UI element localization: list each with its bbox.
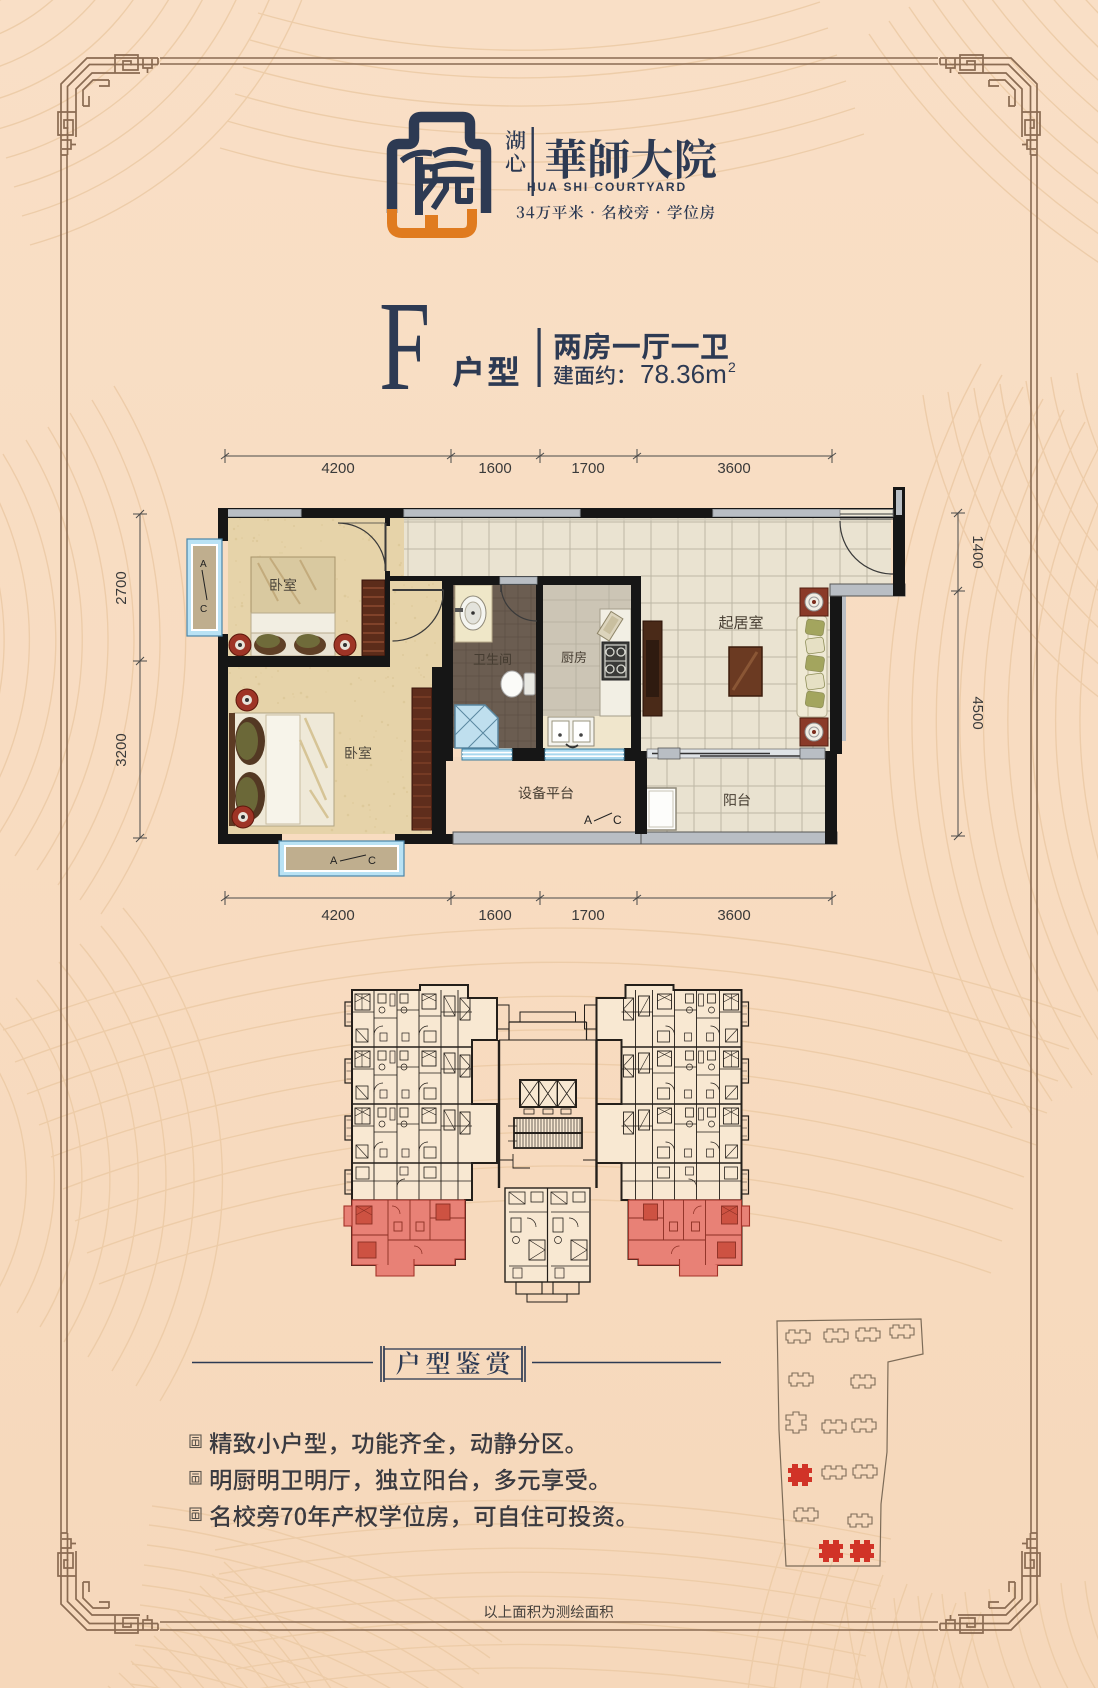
svg-text:2700: 2700 [113, 571, 130, 604]
svg-text:3600: 3600 [717, 907, 750, 924]
svg-text:F: F [379, 277, 430, 418]
svg-text:C: C [368, 855, 376, 867]
svg-text:3200: 3200 [113, 733, 130, 766]
svg-text:A: A [330, 855, 338, 867]
svg-text:2: 2 [728, 359, 736, 375]
svg-text:A: A [200, 559, 207, 570]
svg-text:3600: 3600 [717, 460, 750, 477]
svg-text:A: A [584, 813, 592, 827]
svg-text:1700: 1700 [571, 907, 604, 924]
svg-text:1600: 1600 [478, 460, 511, 477]
svg-text:1700: 1700 [571, 460, 604, 477]
svg-text:1400: 1400 [969, 535, 986, 568]
svg-text:C: C [200, 604, 207, 615]
svg-text:78.36m: 78.36m [640, 359, 727, 389]
svg-text:1600: 1600 [478, 907, 511, 924]
svg-text:4200: 4200 [321, 907, 354, 924]
svg-text:4500: 4500 [969, 696, 986, 729]
svg-text:HUA SHI COURTYARD: HUA SHI COURTYARD [527, 180, 687, 194]
svg-text:4200: 4200 [321, 460, 354, 477]
svg-text:C: C [613, 813, 622, 827]
